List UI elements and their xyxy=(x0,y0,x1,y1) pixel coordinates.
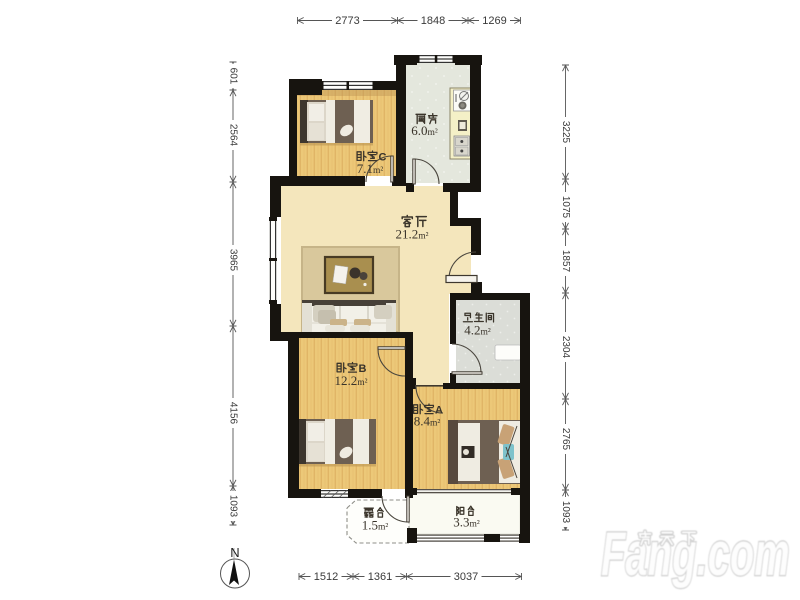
svg-text:N: N xyxy=(230,545,239,560)
svg-text:B: B xyxy=(359,363,367,375)
svg-text:1361: 1361 xyxy=(368,571,392,583)
svg-text:3225: 3225 xyxy=(560,121,571,144)
svg-text:1093: 1093 xyxy=(560,501,571,524)
svg-text:C: C xyxy=(379,152,387,164)
svg-text:1093: 1093 xyxy=(228,495,239,518)
svg-text:2773: 2773 xyxy=(335,15,359,27)
svg-text:1269: 1269 xyxy=(482,15,506,27)
svg-text:3037: 3037 xyxy=(454,571,478,583)
svg-text:1512: 1512 xyxy=(314,571,338,583)
svg-text:3965: 3965 xyxy=(228,249,239,272)
svg-text:1857: 1857 xyxy=(560,250,571,273)
svg-text:A: A xyxy=(435,405,443,417)
svg-text:4156: 4156 xyxy=(228,402,239,425)
svg-text:2564: 2564 xyxy=(228,124,239,147)
svg-text:1075: 1075 xyxy=(560,196,571,219)
svg-text:1848: 1848 xyxy=(421,15,445,27)
svg-text:2765: 2765 xyxy=(560,428,571,451)
svg-text:2304: 2304 xyxy=(560,336,571,359)
svg-text:601: 601 xyxy=(228,68,239,85)
